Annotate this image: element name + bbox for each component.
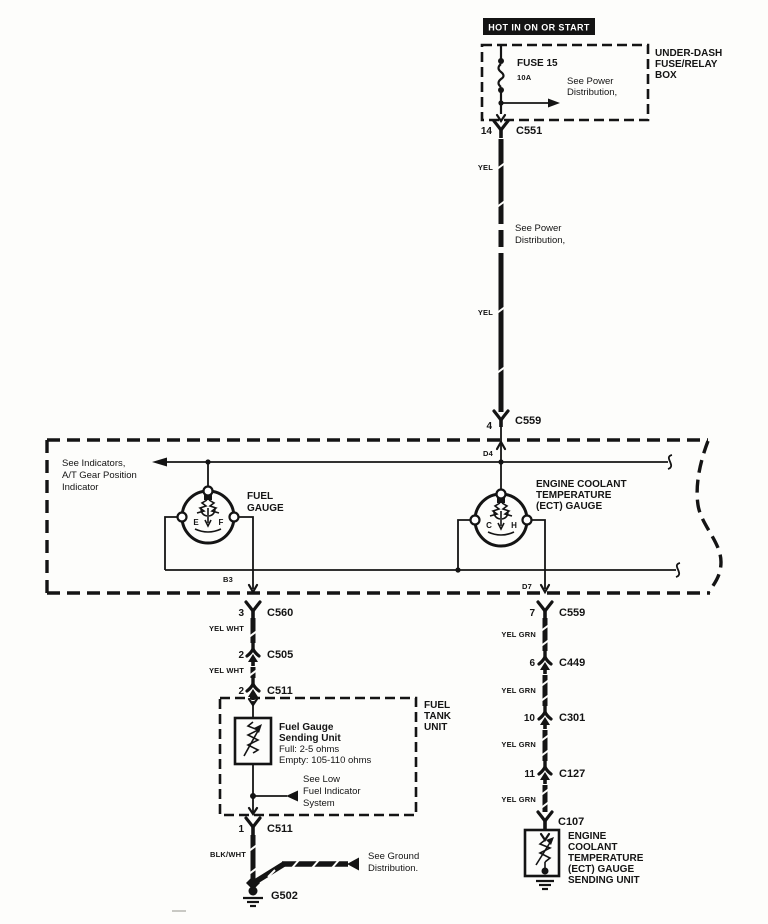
pin-b3: B3 (223, 575, 233, 584)
fuse-rating: 10A (517, 73, 532, 82)
ect-sender-label-3: TEMPERATURE (568, 853, 644, 864)
cluster-note-3: Indicator (62, 482, 98, 493)
connector-c505 (247, 643, 259, 666)
connector-c511-bottom-label: C511 (267, 823, 293, 835)
fuse-element-icon (499, 64, 504, 87)
wire-color-blkwht: BLK/WHT (210, 850, 246, 859)
wire-color-yel-1: YEL (478, 163, 493, 172)
junction-dot (455, 567, 460, 572)
ect-gauge: C H ENGINE COOLANT TEMPERATURE (ECT) GAU… (455, 462, 626, 592)
ect-gauge-right-wire (532, 520, 545, 589)
wire-color-yelwht-2: YEL WHT (209, 666, 244, 675)
connector-c505-label: C505 (267, 649, 293, 661)
pin-2a: 2 (238, 650, 244, 661)
scan-artifact (172, 910, 186, 912)
ect-gauge-label-2: TEMPERATURE (536, 490, 612, 501)
fuel-gauge-label-1: FUEL (247, 491, 273, 502)
connector-fork-icon (246, 818, 260, 827)
connector-c551-label: C551 (516, 125, 542, 137)
pin-10: 10 (524, 713, 536, 724)
ect-sender-label-5: SENDING UNIT (568, 875, 640, 886)
ect-gauge-terminal-left (471, 516, 480, 525)
banner-label: HOT IN ON OR START (488, 23, 590, 33)
connector-c551: 14 C551 (481, 121, 542, 138)
arrow-right-icon (548, 99, 560, 108)
fuse-note-2: Distribution, (567, 87, 617, 98)
connector-c560 (246, 602, 260, 618)
fuel-gauge-terminal-right (230, 513, 239, 522)
ect-gauge-label-3: (ECT) GAUGE (536, 501, 602, 512)
under-dash-fuse-relay-box: UNDER-DASH FUSE/RELAY BOX FUSE 15 10A Se… (482, 45, 722, 121)
low-fuel-note-1: See Low (303, 774, 340, 785)
pin-4: 4 (486, 421, 492, 432)
fuse-box-label-3: BOX (655, 70, 677, 81)
connector-c301-label: C301 (559, 712, 585, 724)
fuel-gauge-left-wire (165, 517, 177, 570)
ect-gauge-terminal-right (523, 516, 532, 525)
connector-c511-top-label: C511 (267, 685, 293, 697)
ect-sending-unit: ENGINE COOLANT TEMPERATURE (ECT) GAUGE S… (525, 830, 644, 889)
wire-break-squiggle-top (668, 455, 672, 469)
connector-c301 (539, 706, 551, 729)
connector-fork-icon (538, 812, 552, 821)
fuse-box-label-1: UNDER-DASH (655, 48, 722, 59)
fuel-gauge-mark-f: F (219, 518, 224, 527)
wiring-diagram-canvas: HOT IN ON OR START UNDER-DASH FUSE/RELAY… (0, 0, 768, 924)
connector-c511-bottom (246, 818, 260, 835)
connector-c127 (539, 761, 551, 784)
ect-gauge-left-wire (458, 520, 470, 570)
ect-gauge-mark-c: C (486, 521, 492, 530)
pin-3: 3 (238, 608, 244, 619)
pin-2b: 2 (238, 686, 244, 697)
wire-color-yelgrn-2: YEL GRN (501, 686, 536, 695)
fuse-note-1: See Power (567, 76, 613, 87)
connector-c107 (538, 812, 552, 829)
ground-branch-diagonal (255, 864, 284, 882)
fuse-box-border (482, 45, 648, 120)
connector-c560-label: C560 (267, 607, 293, 619)
ect-branch: 7 C559 YEL GRN 6 C449 YEL GRN 10 C301 YE… (501, 602, 585, 829)
fuse-terminal-top (498, 58, 504, 64)
arrow-left-icon (152, 458, 167, 467)
fuse-box-label-2: FUSE/RELAY (655, 59, 718, 70)
wire-break-squiggle-bottom (676, 563, 680, 577)
tank-label-1: FUEL (424, 700, 450, 711)
feed-note-2: Distribution, (515, 235, 565, 246)
variable-resistor-icon (248, 722, 258, 753)
low-fuel-note-3: System (303, 798, 335, 809)
fuel-tank-unit: FUEL TANK UNIT Fuel Gauge Sending Unit F… (220, 698, 452, 815)
sender-label-1: Fuel Gauge (279, 722, 334, 733)
connector-c127-label: C127 (559, 768, 585, 780)
connector-c449-label: C449 (559, 657, 585, 669)
fuel-branch: 3 C560 YEL WHT 2 C505 YEL WHT 2 C511 (209, 602, 293, 705)
ground-path: 1 C511 BLK/WHT See Ground Distribution. … (210, 818, 419, 906)
connector-c559-pin7 (538, 602, 552, 618)
wire-color-yel-2: YEL (478, 308, 493, 317)
fuel-gauge-right-wire (238, 517, 253, 589)
wiring-diagram-page: HOT IN ON OR START UNDER-DASH FUSE/RELAY… (0, 0, 768, 924)
instrument-cluster-box: See Indicators, A/T Gear Position Indica… (47, 440, 721, 593)
arrow-left-solid-icon (286, 791, 298, 802)
connector-c559-label: C559 (515, 415, 541, 427)
ect-sender-label-4: (ECT) GAUGE (568, 864, 634, 875)
connector-c559-pin4: 4 C559 D4 (483, 411, 541, 462)
ground-id: G502 (271, 890, 298, 902)
pin-11: 11 (524, 769, 535, 780)
cluster-border-right-torn (697, 441, 721, 592)
sender-spec-full: Full: 2-5 ohms (279, 744, 339, 755)
tank-label-3: UNIT (424, 722, 447, 733)
pin-d7: D7 (522, 582, 532, 591)
cluster-note-1: See Indicators, (62, 458, 125, 469)
ect-sender-label-2: COOLANT (568, 842, 617, 853)
sender-label-2: Sending Unit (279, 733, 341, 744)
connector-c449 (539, 651, 551, 674)
ground-ball (249, 887, 258, 896)
connector-fork-icon (494, 411, 508, 420)
connector-fork-icon (538, 602, 552, 611)
connector-fork-icon (246, 602, 260, 611)
pin-d4: D4 (483, 449, 494, 458)
pin-6: 6 (529, 658, 535, 669)
fuel-gauge-mark-e: E (193, 518, 199, 527)
power-source-banner: HOT IN ON OR START (483, 18, 595, 35)
cluster-note-2: A/T Gear Position (62, 470, 137, 481)
fuse-name: FUSE 15 (517, 58, 558, 69)
connector-c107-label: C107 (558, 816, 584, 828)
ect-gauge-terminal-top (497, 490, 506, 499)
wire-color-yelgrn-4: YEL GRN (501, 795, 536, 804)
fuel-gauge-terminal-left (178, 513, 187, 522)
fuel-gauge-label-2: GAUGE (247, 503, 284, 514)
ect-sender-label-1: ENGINE (568, 831, 607, 842)
tank-label-2: TANK (424, 711, 452, 722)
pin-7: 7 (529, 608, 535, 619)
ect-gauge-mark-h: H (511, 521, 517, 530)
pin-14: 14 (481, 126, 493, 137)
ect-gauge-label-1: ENGINE COOLANT (536, 479, 627, 490)
wire-color-yelwht-1: YEL WHT (209, 624, 244, 633)
feed-note-1: See Power (515, 223, 561, 234)
ground-note-2: Distribution. (368, 863, 418, 874)
low-fuel-note-2: Fuel Indicator (303, 786, 361, 797)
fuel-gauge-terminal-top (204, 487, 213, 496)
arrow-down-icon (541, 834, 549, 840)
pin-1: 1 (238, 824, 244, 835)
ground-ball (542, 868, 549, 875)
fuel-gauge: E F FUEL GAUGE B3 (165, 462, 284, 592)
wire-color-yelgrn-3: YEL GRN (501, 740, 536, 749)
feed-wire: YEL See Power Distribution, YEL (478, 139, 565, 412)
wire-color-yelgrn-1: YEL GRN (501, 630, 536, 639)
connector-c559b-label: C559 (559, 607, 585, 619)
sender-spec-empty: Empty: 105-110 ohms (279, 755, 371, 766)
arrow-left-solid-icon (347, 858, 359, 871)
ground-note-1: See Ground (368, 851, 419, 862)
